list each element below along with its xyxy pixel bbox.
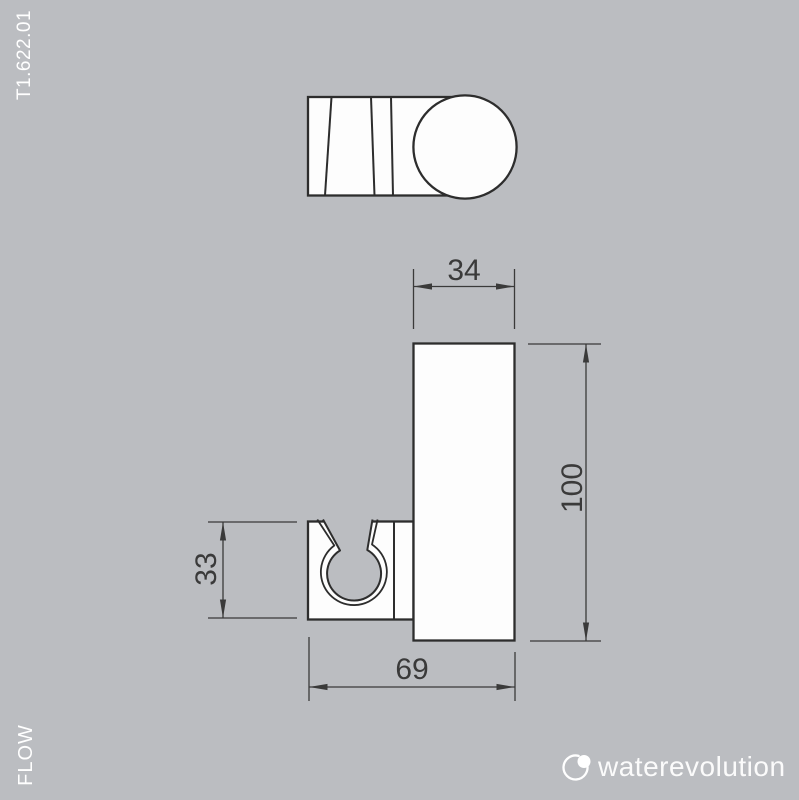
arrow-down-icon [583, 623, 589, 642]
dimension-clip-height-label: 33 [192, 539, 222, 599]
brand-logo: waterevolution [562, 752, 786, 782]
top-view-flange-circle [413, 95, 516, 198]
dimension-depth-label: 69 [382, 655, 442, 685]
arrow-right-icon [496, 283, 515, 289]
droplet-ring-icon [562, 752, 592, 782]
arrow-left-icon [414, 283, 433, 289]
side-view-wall-bar [414, 344, 515, 641]
dimension-height-label: 100 [558, 448, 588, 528]
arrow-right-icon [497, 684, 516, 690]
side-view [308, 344, 515, 641]
drawing-page: T1.622.01 FLOW [0, 0, 799, 800]
arrow-up-icon [220, 522, 226, 541]
arrow-up-icon [583, 344, 589, 363]
arrow-left-icon [309, 684, 328, 690]
top-view [308, 95, 517, 198]
brand-wordmark: waterevolution [598, 752, 786, 782]
dimension-width-label: 34 [434, 256, 494, 286]
arrow-down-icon [220, 600, 226, 619]
